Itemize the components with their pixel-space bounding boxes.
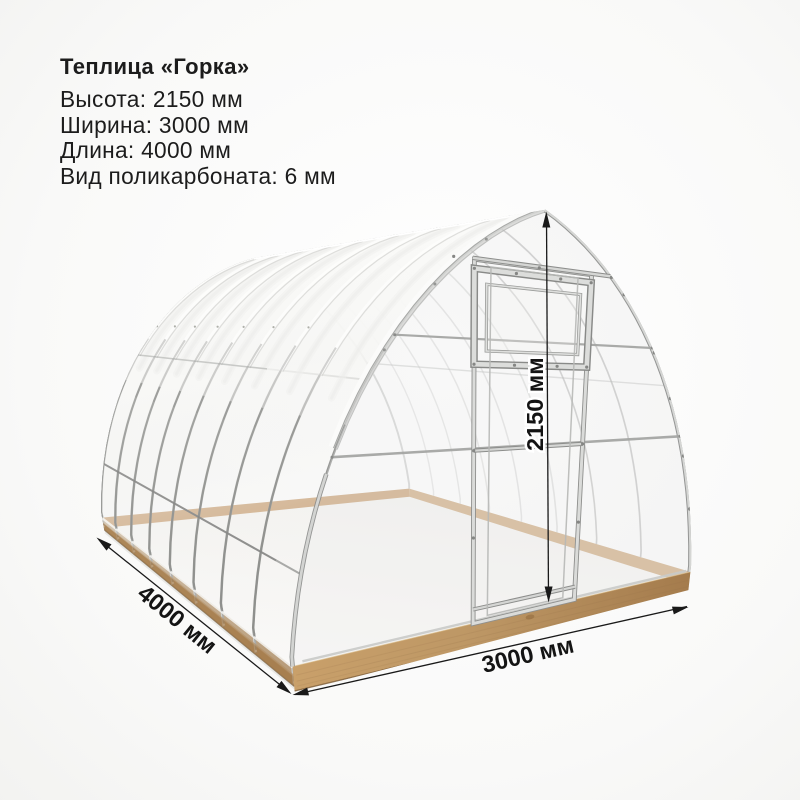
svg-text:2150 мм: 2150 мм xyxy=(522,357,548,451)
